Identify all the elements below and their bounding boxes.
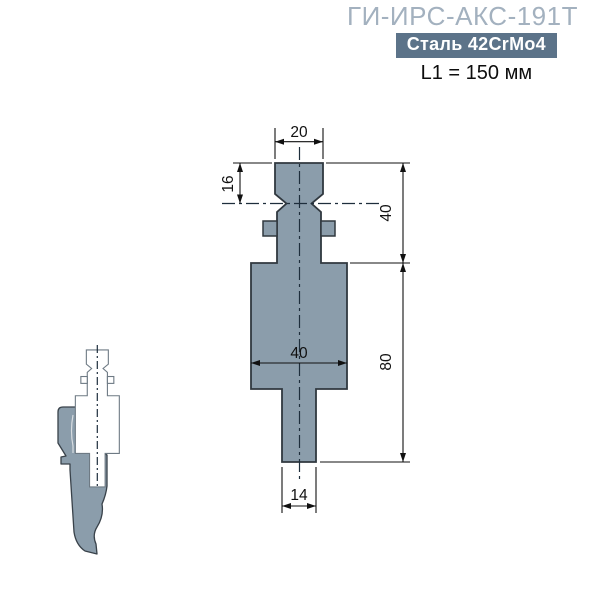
dim-shank-height: 40 [326,163,410,263]
side-view-left-lug [81,377,87,384]
dim-body-width-label: 40 [290,345,308,362]
dim-top-width-label: 20 [290,124,308,141]
right-lug [321,221,335,236]
dim-body-height-label: 80 [378,353,395,371]
dim-neck-height: 16 [220,163,272,204]
dim-stem-width-label: 14 [290,487,308,504]
technical-drawing: 20 16 40 80 [0,0,600,600]
side-view [58,345,119,554]
side-view-right-lug [107,377,113,384]
left-lug [263,221,277,236]
dim-neck-height-label: 16 [220,175,237,192]
dim-shank-height-label: 40 [378,204,395,222]
front-view [222,147,380,483]
dim-stem-width: 14 [282,467,316,513]
